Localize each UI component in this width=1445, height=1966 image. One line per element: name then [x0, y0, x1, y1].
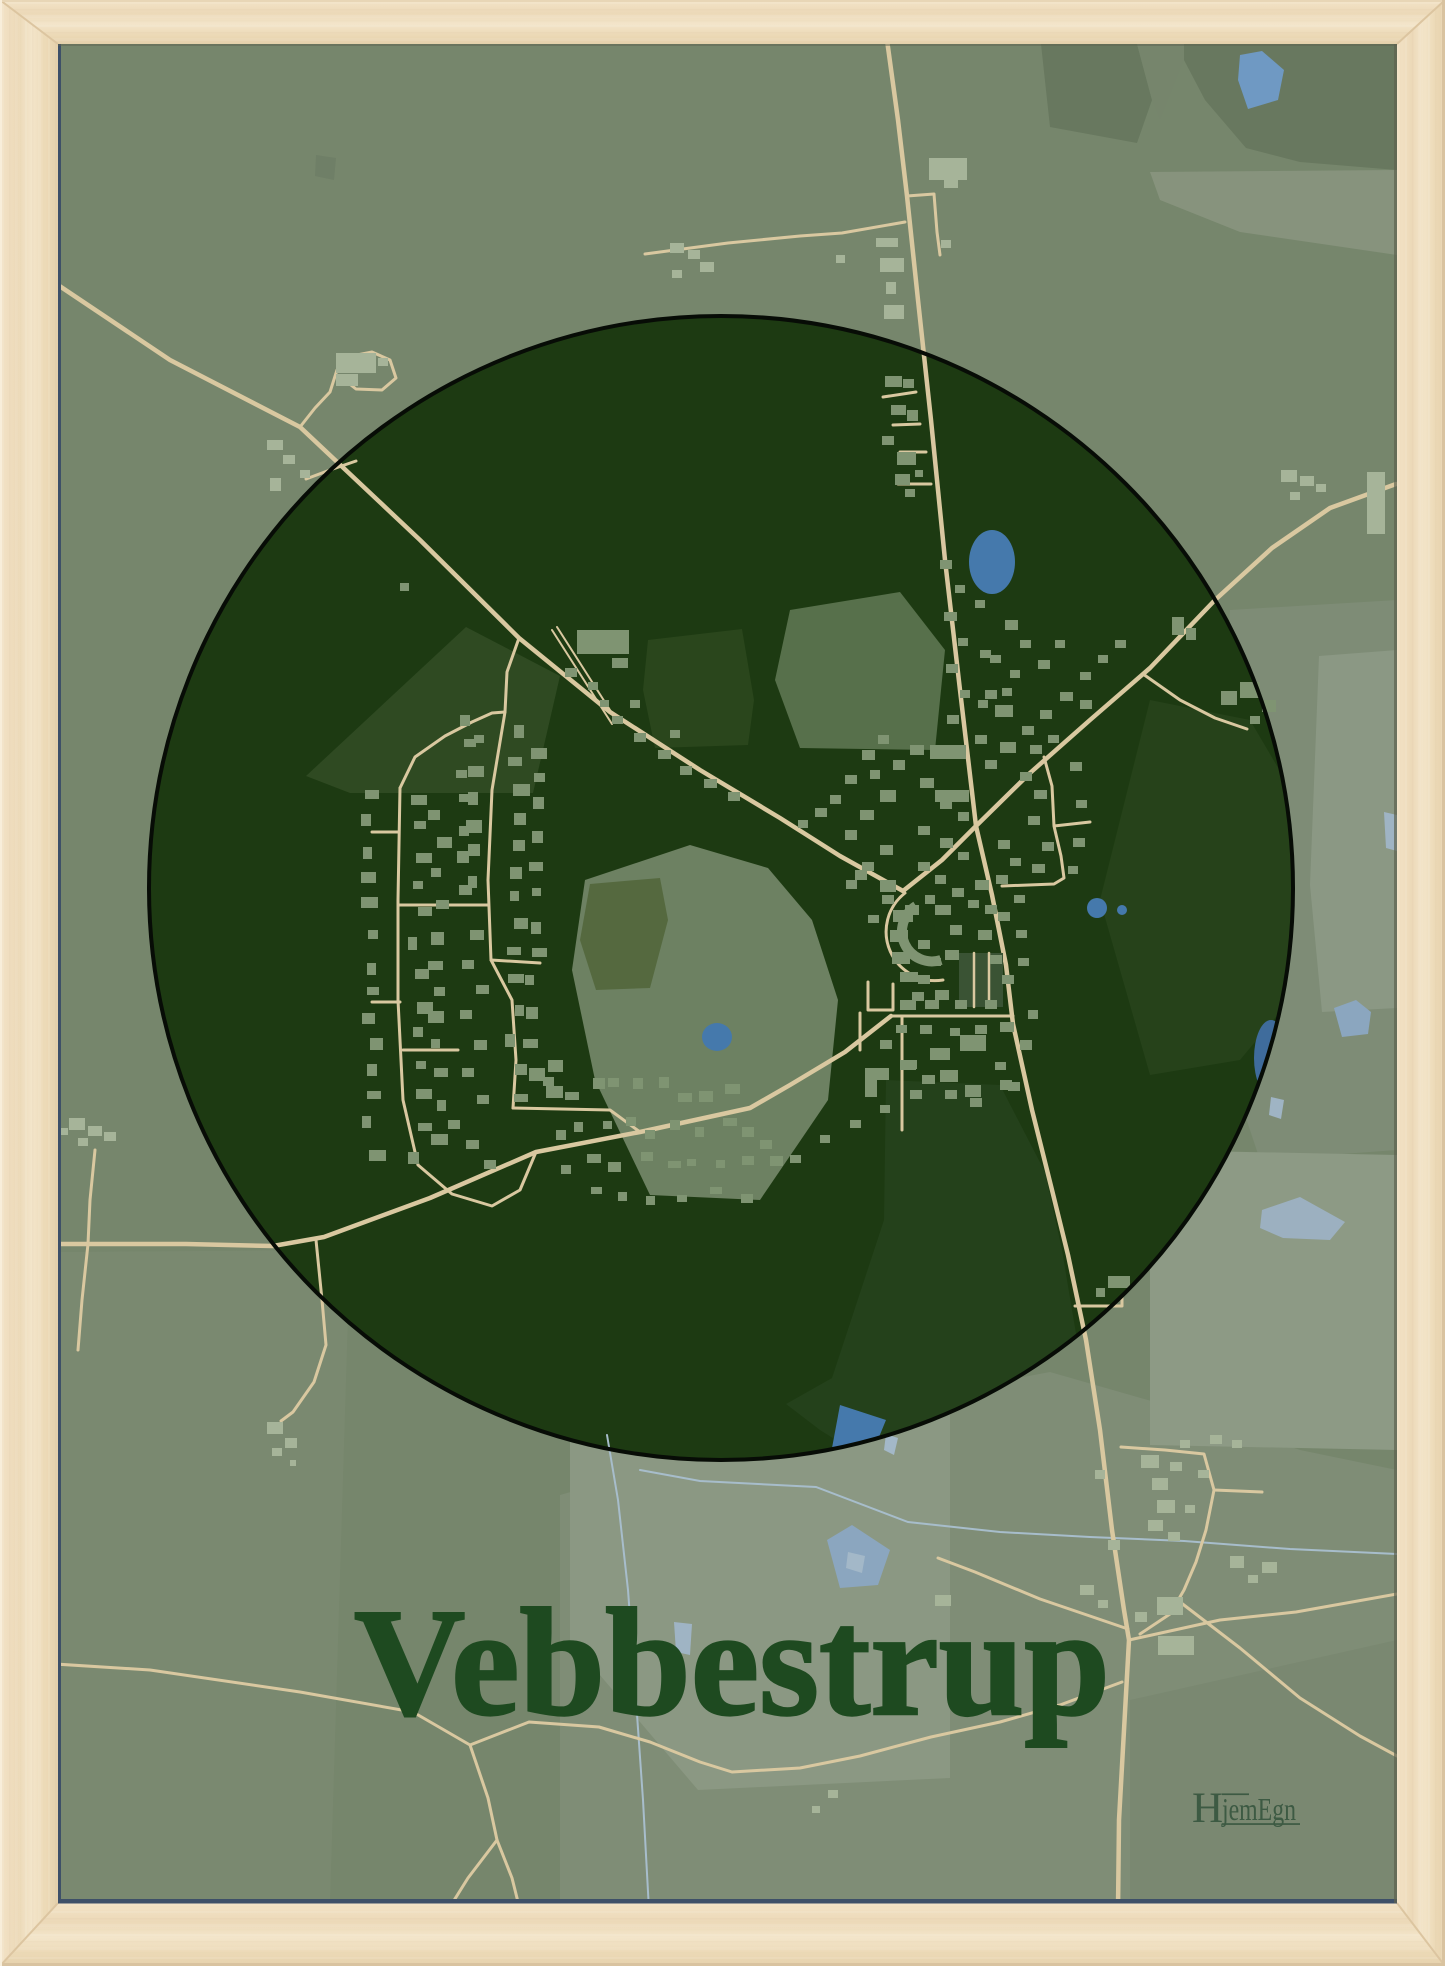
- svg-text:jemEgn: jemEgn: [1221, 1791, 1296, 1827]
- svg-text:H: H: [1192, 1785, 1223, 1832]
- svg-text:Vebbestrup: Vebbestrup: [354, 1578, 1110, 1748]
